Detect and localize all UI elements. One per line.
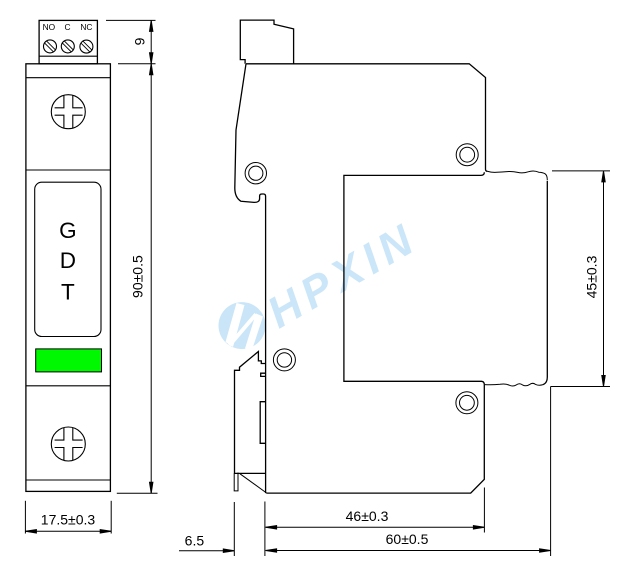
svg-text:45±0.3: 45±0.3 [583, 255, 599, 298]
svg-text:9: 9 [132, 37, 148, 45]
svg-text:T: T [61, 280, 75, 305]
svg-text:6.5: 6.5 [185, 533, 205, 549]
svg-text:C: C [64, 22, 70, 32]
svg-text:17.5±0.3: 17.5±0.3 [41, 512, 96, 528]
svg-text:90±0.5: 90±0.5 [130, 255, 146, 298]
svg-text:60±0.5: 60±0.5 [386, 531, 429, 547]
svg-text:G: G [59, 218, 77, 243]
svg-text:46±0.3: 46±0.3 [346, 508, 389, 524]
svg-text:NC: NC [80, 22, 92, 32]
svg-text:D: D [60, 248, 76, 273]
svg-text:NO: NO [43, 22, 56, 32]
